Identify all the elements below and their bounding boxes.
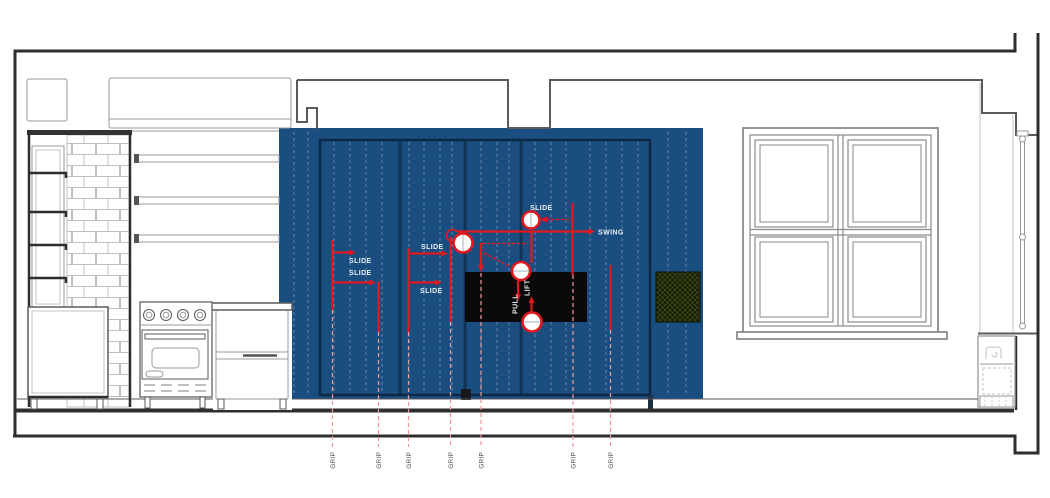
window [737,128,947,339]
grip-label-5: GRIP [479,452,486,469]
grip-label-2: GRIP [376,452,383,469]
open-shelves [134,154,279,243]
grip-label-3: GRIP [406,452,413,469]
counter-unit [211,303,292,410]
grip-label-6: GRIP [571,452,578,469]
door-pivot-mark [461,389,471,400]
slide-label-4: SLIDE [420,288,443,295]
grip-label-7: GRIP [608,452,615,469]
oven-handle [145,334,205,339]
ceiling-box-left [27,79,67,121]
bulkhead-notch [297,80,317,129]
shelf-unit [30,146,66,308]
swing-label: SWING [598,230,624,237]
elevation-drawing: SLIDE SLIDE SLIDE SLIDE SLIDE SWING [0,0,1050,498]
floor [15,399,1014,411]
pull-label: PULL [513,294,520,314]
slide-label-2: SLIDE [349,270,372,277]
lift-label: LIFT [525,279,532,296]
elevation-canvas: SLIDE SLIDE SLIDE SLIDE SLIDE SWING [0,0,1050,498]
window-sill [737,332,947,339]
blue-cabinet-wall [279,128,703,409]
ceiling-soffit [109,78,291,128]
slide-label-5: SLIDE [530,205,553,212]
grip-label-4: GRIP [448,452,455,469]
stove [140,302,212,408]
slide-label-1: SLIDE [349,258,372,265]
lintel-band [27,130,132,135]
grip-label-1: GRIP [330,452,337,469]
sink-unit [978,336,1015,407]
vent-grille [656,272,700,322]
slide-label-3: SLIDE [421,244,444,251]
countertop [211,303,292,310]
cabinet-leg-mark [648,395,653,409]
right-wall-zone [978,83,1038,410]
pipe [1017,131,1028,329]
base-cabinet [28,307,108,409]
